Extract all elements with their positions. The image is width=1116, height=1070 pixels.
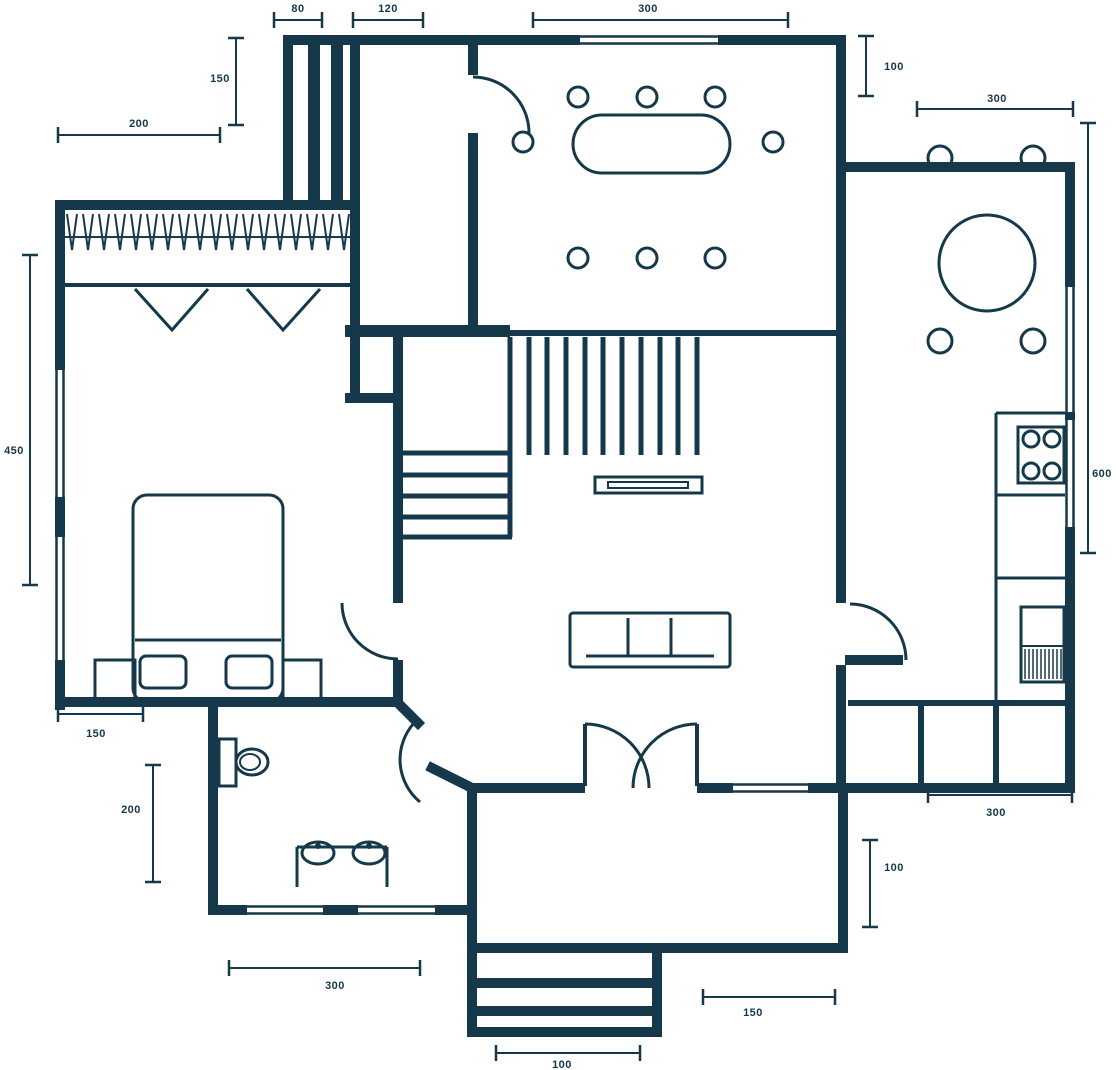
dimension-label: 100 <box>884 862 904 874</box>
dimension-label: 80 <box>291 3 304 15</box>
dimension-label: 150 <box>210 73 230 85</box>
wall-layer <box>55 35 1075 1037</box>
dimension-label: 150 <box>86 728 106 740</box>
floor-plan: 8012030015020045015020030010015010030010… <box>0 0 1116 1070</box>
dimension-label: 100 <box>552 1059 572 1070</box>
dimension-label: 300 <box>325 980 345 992</box>
dimension-label: 300 <box>986 807 1006 819</box>
dimension-label: 300 <box>638 3 658 15</box>
dimension-label: 100 <box>884 61 904 73</box>
dimension-label: 120 <box>378 3 398 15</box>
dimension-label: 200 <box>121 804 141 816</box>
dimension-label: 600 <box>1092 468 1112 480</box>
dimension-label: 150 <box>743 1007 763 1019</box>
dimension-label: 200 <box>129 118 149 130</box>
dimension-label: 300 <box>987 93 1007 105</box>
dimension-label: 450 <box>4 445 24 457</box>
plan-canvas: 8012030015020045015020030010015010030010… <box>0 0 1116 1070</box>
